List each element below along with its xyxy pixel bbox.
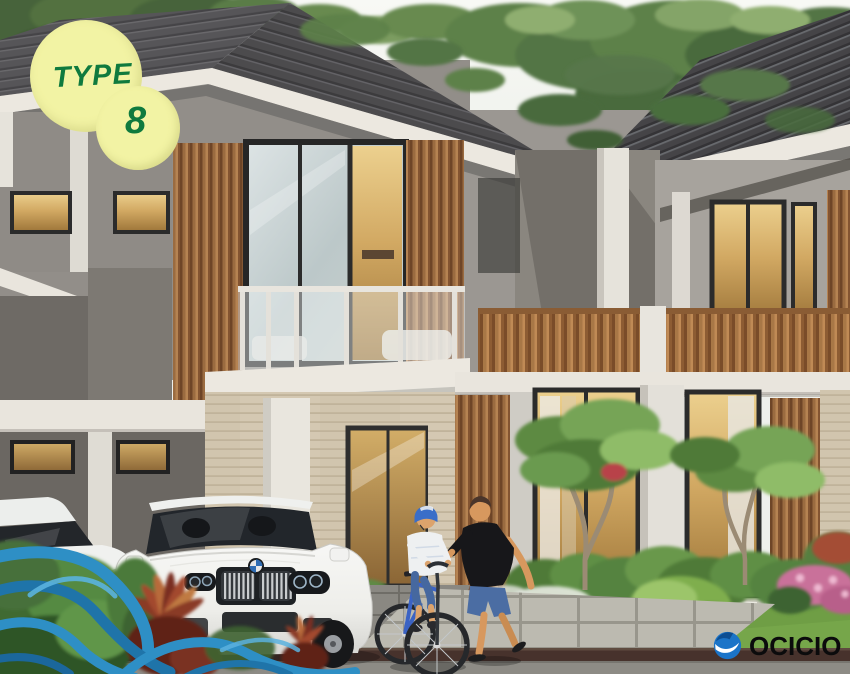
ocicio-wave-circle-icon <box>711 629 744 662</box>
carport-transom-window-2 <box>118 442 168 472</box>
right-unit-facade <box>455 148 850 610</box>
upper-transom-window-2 <box>115 193 168 232</box>
badge-type-label: TYPE <box>52 60 133 93</box>
bmw-roundel-icon <box>249 559 263 573</box>
upper-window-narrow <box>793 204 815 322</box>
carport-transom-window-1 <box>12 442 73 472</box>
bicycle-fork <box>437 573 438 645</box>
ocicio-watermark: OCICIO <box>711 629 841 662</box>
suv-headlight-right <box>288 571 330 594</box>
suv-headlight-left <box>184 573 216 591</box>
carport-canopy-fascia <box>0 400 205 432</box>
type-badge: TYPE 8 <box>28 16 190 178</box>
upper-window-pair <box>712 202 784 324</box>
property-render-scene: TYPE 8 OCICIO <box>0 0 850 674</box>
upper-transom-window-1 <box>12 193 70 232</box>
timber-balcony-railing <box>478 306 850 376</box>
ocicio-logo-text: OCICIO <box>749 633 841 659</box>
recessed-glazing <box>478 178 520 273</box>
boy-torso <box>407 532 447 576</box>
timber-slat-pier <box>173 143 243 403</box>
badge-type-number: 8 <box>125 102 146 140</box>
suv-mirror-right <box>330 548 349 561</box>
